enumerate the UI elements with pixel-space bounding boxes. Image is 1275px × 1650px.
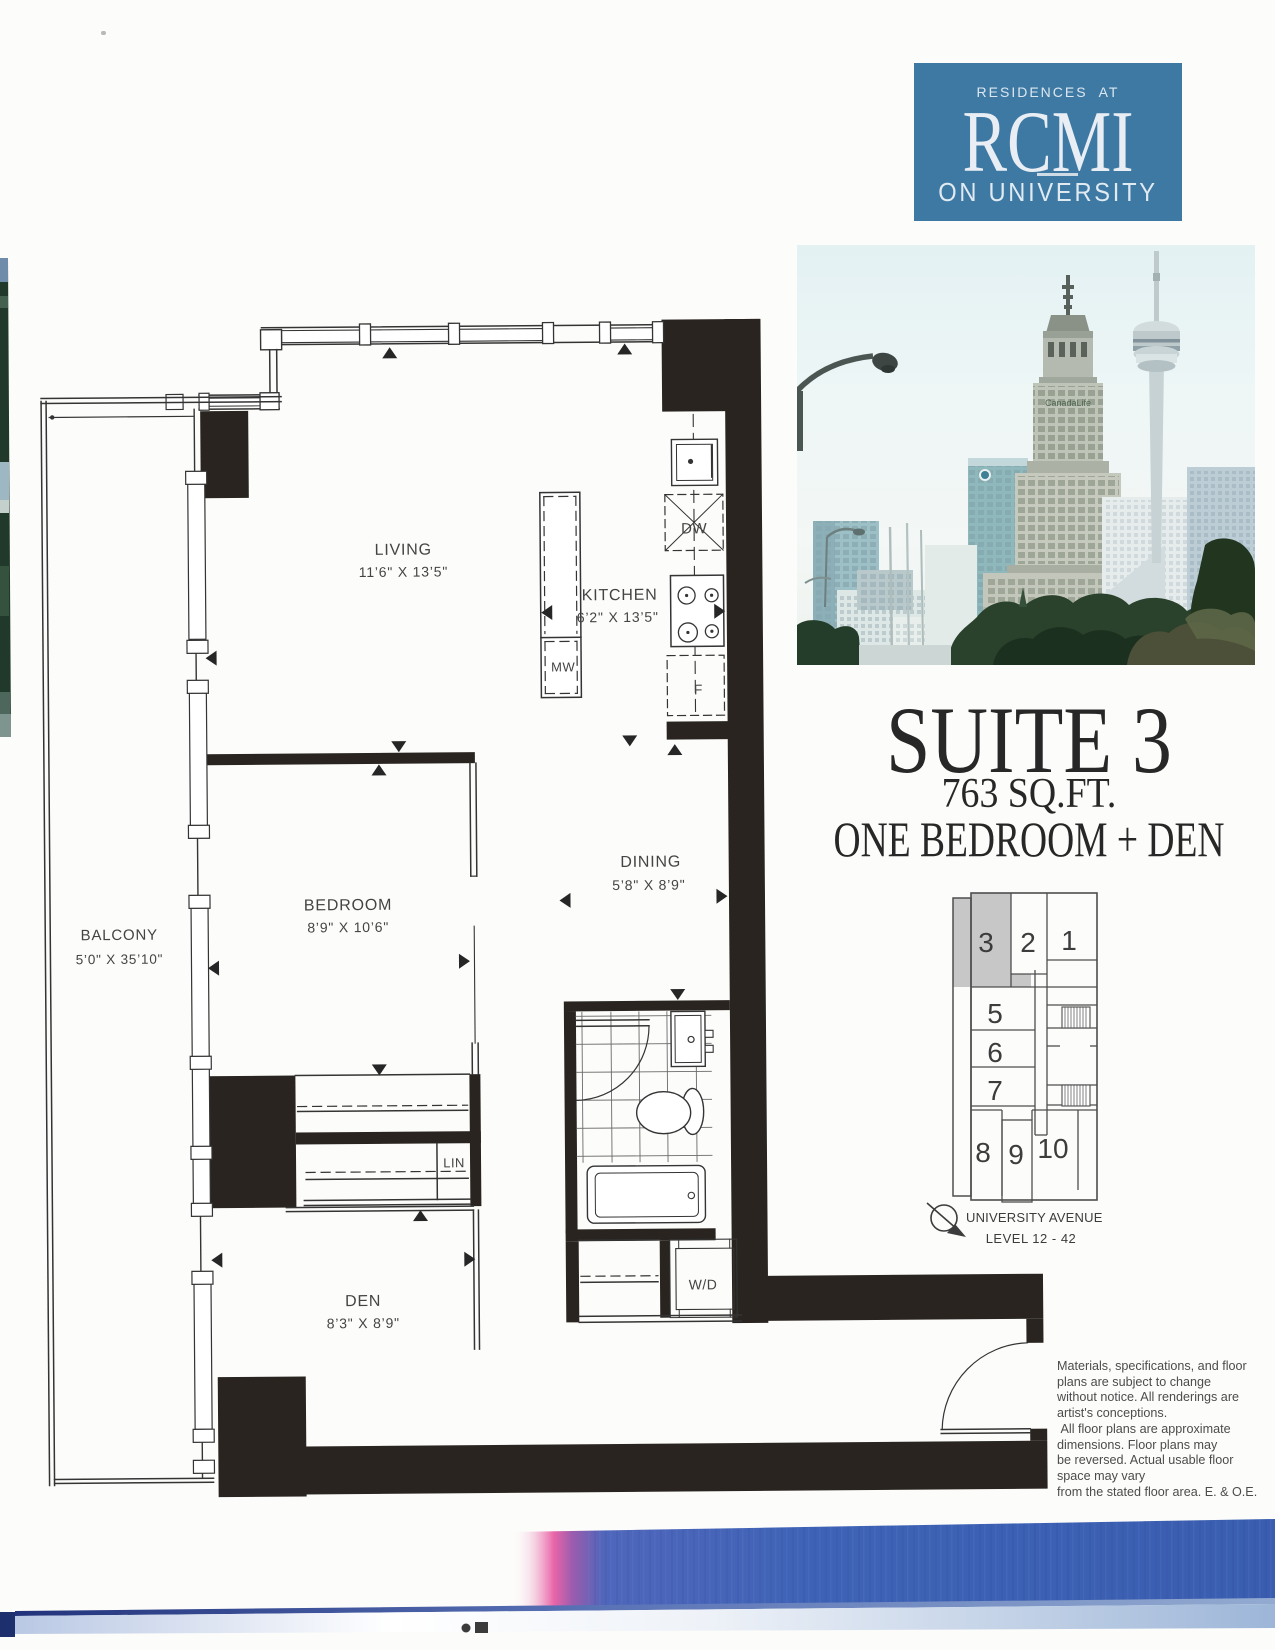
svg-text:1: 1 [1061, 925, 1077, 956]
svg-text:11’6" X 13’5": 11’6" X 13’5" [359, 563, 448, 580]
svg-text:BEDROOM: BEDROOM [304, 897, 392, 915]
svg-text:9: 9 [1008, 1139, 1024, 1170]
svg-text:7: 7 [987, 1075, 1003, 1106]
svg-text:KITCHEN: KITCHEN [582, 587, 658, 605]
svg-text:DINING: DINING [620, 854, 681, 871]
svg-text:LIVING: LIVING [375, 541, 432, 558]
svg-text:LIN: LIN [443, 1155, 465, 1170]
svg-text:8: 8 [975, 1137, 991, 1168]
svg-text:DEN: DEN [345, 1293, 381, 1310]
svg-text:BALCONY: BALCONY [81, 927, 158, 945]
svg-text:W/D: W/D [689, 1276, 718, 1292]
svg-text:UNIVERSITY AVENUE: UNIVERSITY AVENUE [966, 1210, 1103, 1225]
svg-text:3: 3 [978, 927, 994, 958]
svg-text:MW: MW [551, 659, 575, 674]
svg-text:5: 5 [987, 998, 1003, 1029]
svg-text:5’8" X 8’9": 5’8" X 8’9" [612, 876, 685, 893]
svg-text:F: F [694, 681, 703, 697]
svg-text:LEVEL 12 - 42: LEVEL 12 - 42 [986, 1231, 1077, 1246]
svg-text:6’2" X 13’5": 6’2" X 13’5" [577, 609, 659, 626]
svg-text:DW: DW [681, 520, 707, 537]
svg-text:6: 6 [987, 1037, 1003, 1068]
svg-text:5’0" X 35’10": 5’0" X 35’10" [76, 952, 164, 968]
svg-text:CanadaLife: CanadaLife [1045, 398, 1091, 408]
svg-text:10: 10 [1037, 1133, 1068, 1164]
svg-text:8’3" X 8’9": 8’3" X 8’9" [327, 1315, 400, 1332]
svg-text:8’9" X 10’6": 8’9" X 10’6" [307, 919, 389, 936]
svg-text:2: 2 [1020, 927, 1036, 958]
